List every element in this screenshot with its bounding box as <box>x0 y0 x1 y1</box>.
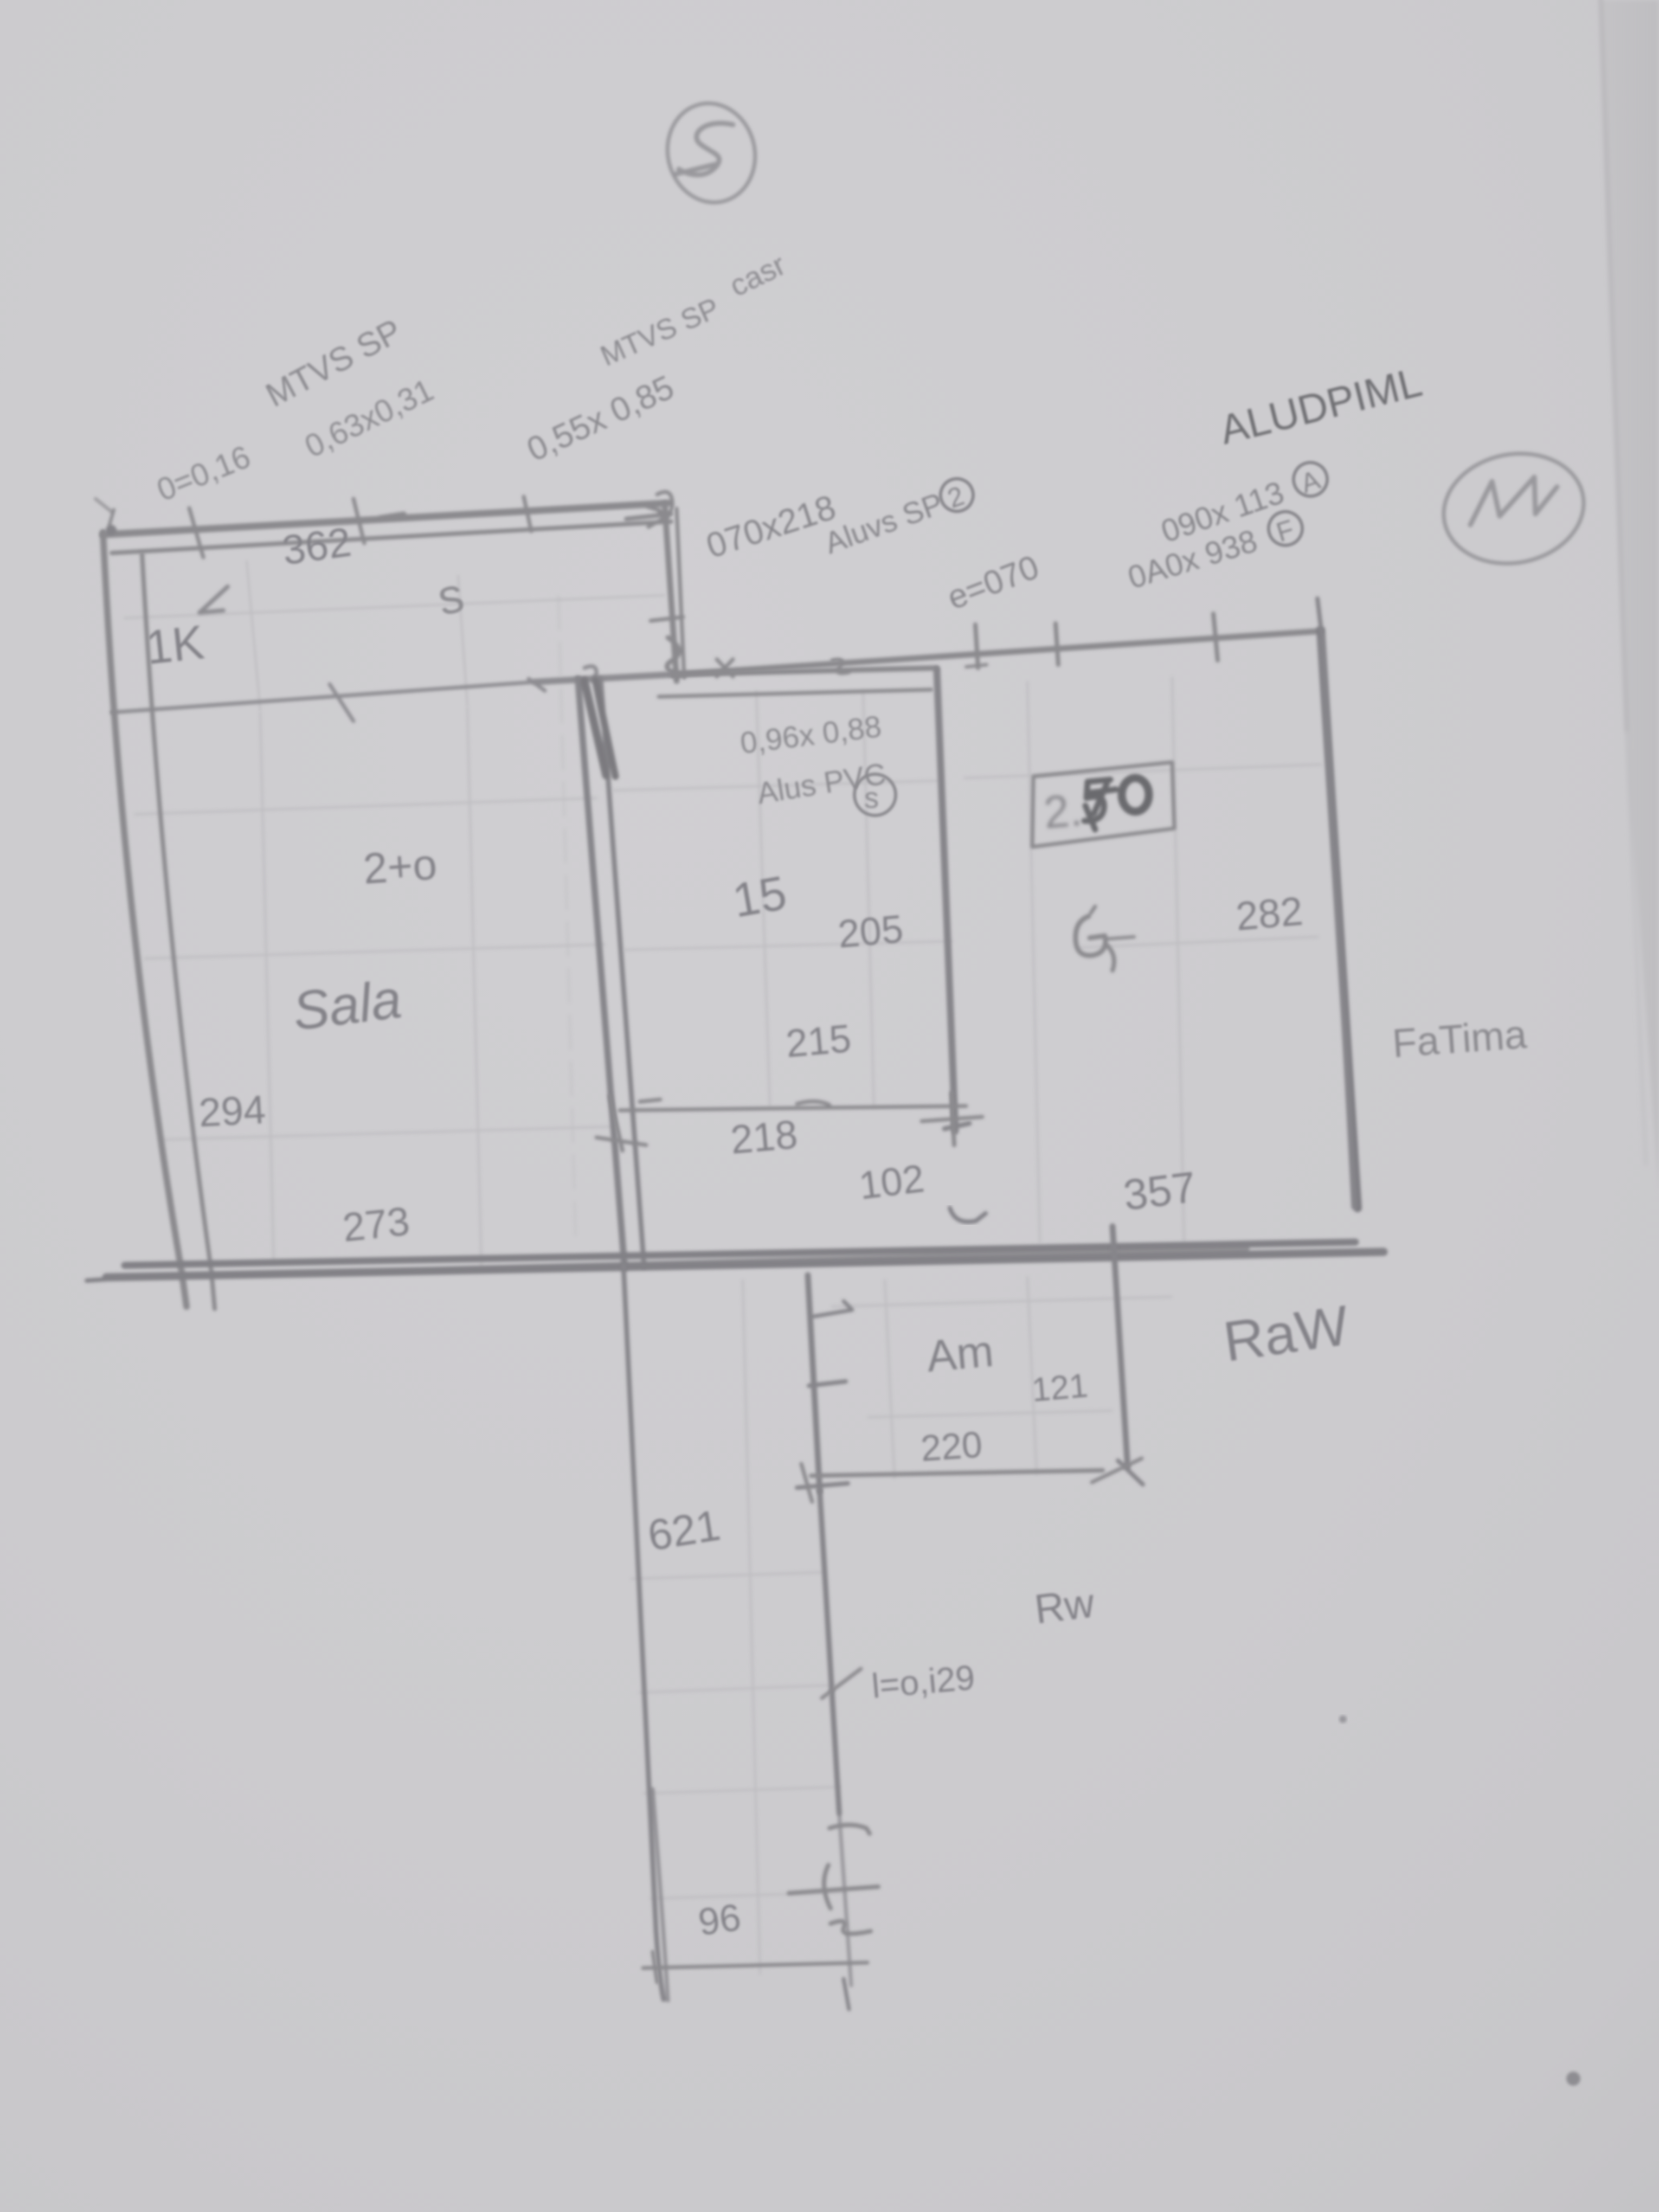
svg-text:273: 273 <box>340 1198 411 1250</box>
svg-text:294: 294 <box>197 1087 267 1135</box>
svg-text:215: 215 <box>784 1017 853 1066</box>
svg-text:205: 205 <box>836 908 905 956</box>
svg-text:121: 121 <box>1030 1367 1089 1409</box>
svg-text:Rw: Rw <box>1032 1580 1097 1633</box>
svg-text:220: 220 <box>919 1424 983 1469</box>
svg-text:357: 357 <box>1121 1162 1198 1219</box>
svg-text:2+o: 2+o <box>362 840 439 893</box>
svg-text:s: s <box>864 782 879 814</box>
svg-text:218: 218 <box>729 1111 799 1162</box>
svg-text:2.: 2. <box>1041 784 1084 838</box>
svg-text:102: 102 <box>857 1157 927 1208</box>
svg-text:96: 96 <box>696 1896 743 1944</box>
svg-text:15: 15 <box>729 865 790 927</box>
svg-text:1K: 1K <box>143 615 207 674</box>
svg-text:Am: Am <box>925 1327 995 1381</box>
svg-text:282: 282 <box>1234 888 1304 938</box>
svg-text:362: 362 <box>280 519 354 574</box>
svg-text:FaTima: FaTima <box>1391 1012 1528 1066</box>
